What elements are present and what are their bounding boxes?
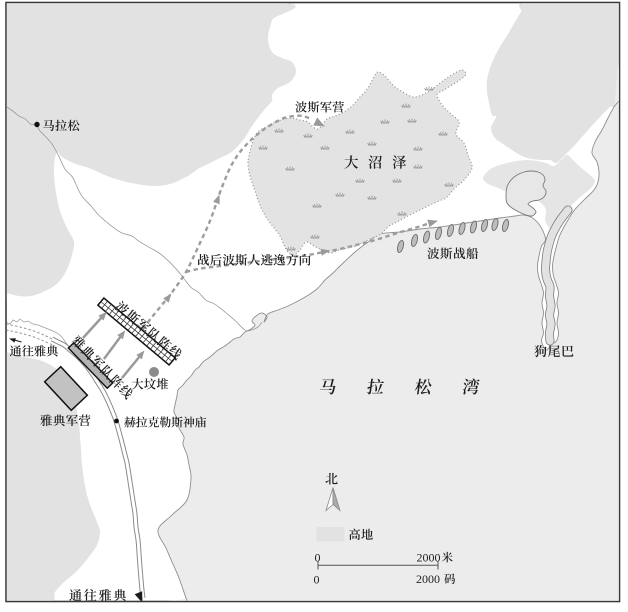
svg-text:0: 0 — [315, 551, 321, 565]
svg-text:2000: 2000 — [416, 572, 440, 586]
svg-text:2000: 2000 — [417, 551, 441, 565]
svg-text:0: 0 — [314, 573, 320, 587]
